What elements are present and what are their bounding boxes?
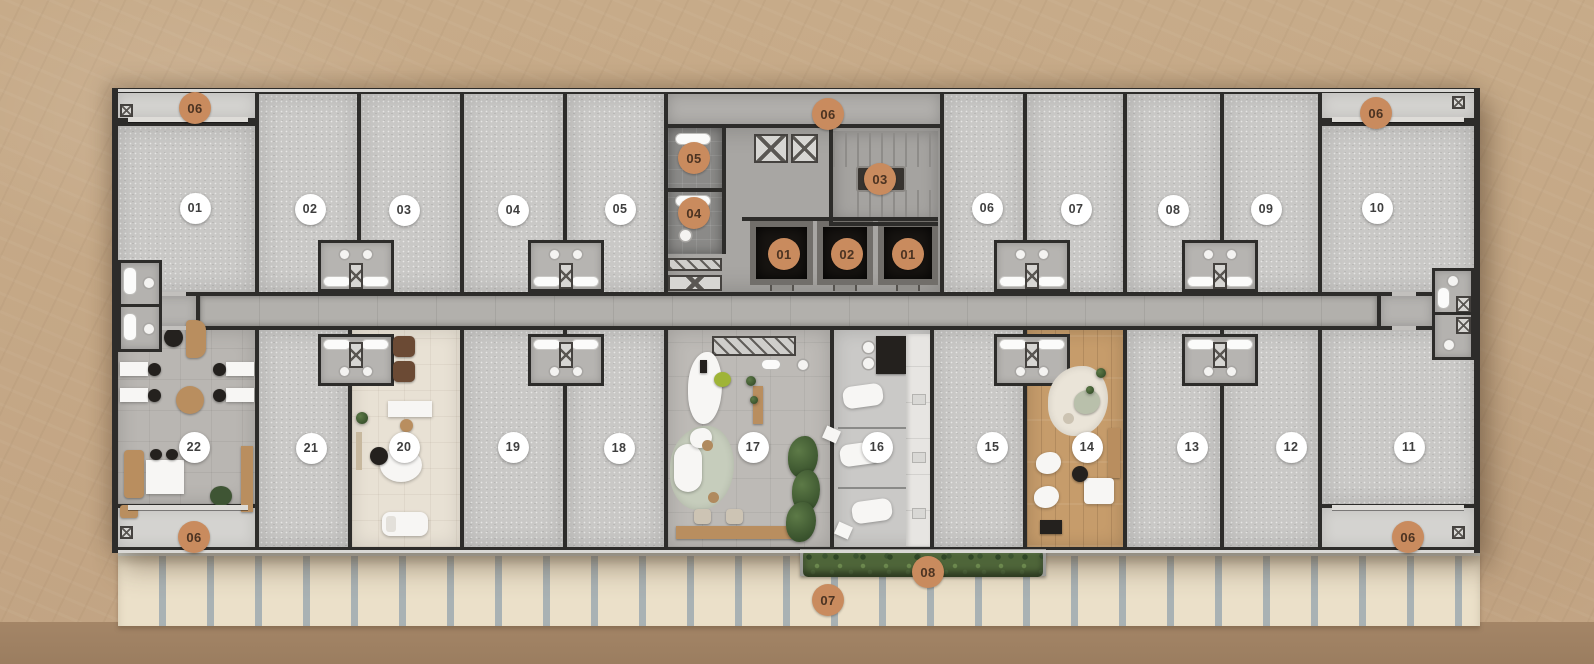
unit-badge-08: 08 [1158,195,1189,226]
badge-layer: 0102030405060708091011121314151617181920… [0,0,1594,664]
key-badge-terrace-bottom-left: 06 [178,521,210,553]
key-badge-elevator-right: 01 [892,238,924,270]
unit-badge-06: 06 [972,193,1003,224]
key-badge-core-hall: 06 [812,98,844,130]
unit-badge-04: 04 [498,195,529,226]
unit-badge-02: 02 [295,194,326,225]
key-badge-hedge-planter: 08 [912,556,944,588]
unit-badge-18: 18 [604,433,635,464]
unit-badge-01: 01 [180,193,211,224]
unit-badge-12: 12 [1276,432,1307,463]
unit-badge-22: 22 [179,432,210,463]
key-badge-sidewalk: 07 [812,584,844,616]
key-badge-terrace-bottom-right: 06 [1392,521,1424,553]
unit-badge-07: 07 [1061,194,1092,225]
key-badge-wc-upper: 05 [678,142,710,174]
unit-badge-20: 20 [389,432,420,463]
key-badge-stairs: 03 [864,163,896,195]
unit-badge-03: 03 [389,195,420,226]
key-badge-elevator-middle: 02 [831,238,863,270]
key-badge-terrace-top-left: 06 [179,92,211,124]
unit-badge-21: 21 [296,433,327,464]
unit-badge-11: 11 [1394,432,1425,463]
unit-badge-15: 15 [977,432,1008,463]
key-badge-terrace-top-right: 06 [1360,97,1392,129]
floorplan-canvas: 0102030405060708091011121314151617181920… [0,0,1594,664]
key-badge-wc-lower: 04 [678,197,710,229]
unit-badge-05: 05 [605,194,636,225]
unit-badge-16: 16 [862,432,893,463]
unit-badge-19: 19 [498,432,529,463]
unit-badge-09: 09 [1251,194,1282,225]
unit-badge-13: 13 [1177,432,1208,463]
unit-badge-14: 14 [1072,432,1103,463]
unit-badge-10: 10 [1362,193,1393,224]
key-badge-elevator-left: 01 [768,238,800,270]
unit-badge-17: 17 [738,432,769,463]
